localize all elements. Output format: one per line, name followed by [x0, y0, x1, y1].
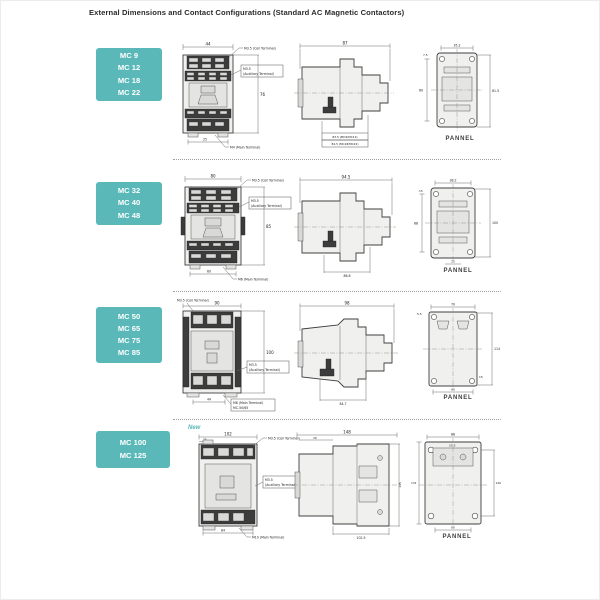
model-line: MC 100 [120, 437, 147, 449]
dim-bottom: 25 [451, 260, 455, 264]
callout-aux-terminal: M3.5 [243, 67, 251, 71]
model-label-mc32-48: MC 32 MC 40 MC 48 [96, 182, 162, 225]
pannel-label: PANNEL [411, 534, 503, 540]
dim-bottom-right: 15 [479, 375, 483, 379]
dim-overall-height: 100 [492, 221, 498, 225]
dim-bottom: 25 [203, 138, 207, 142]
model-line: MC 32 [118, 185, 140, 197]
dim-depth: 87 [342, 41, 348, 46]
dim-width: 44 [205, 42, 211, 47]
model-line: MC 40 [118, 197, 140, 209]
callout-aux-terminal: M3.5 [249, 363, 257, 367]
side-view-mc32-48: 94.5 86.8 [294, 173, 398, 279]
dim-bottom: 84 [221, 529, 225, 533]
dim-mount-height: 68 [414, 222, 418, 226]
contactor-profile [293, 444, 401, 526]
model-line: MC 48 [118, 210, 140, 222]
callout-aux-terminal: (Auxiliary Terminal) [265, 483, 296, 487]
dim-mount-height: 131 [411, 481, 417, 485]
dim-mount-depth: 102.5 [356, 536, 365, 540]
panel-cutout [423, 308, 483, 390]
callout-aux-terminal: (Auxiliary Terminal) [251, 204, 282, 208]
dim-depth: 94.5 [342, 175, 351, 180]
dim-width: 80 [210, 174, 216, 179]
contactor-body [183, 311, 241, 397]
dim-depth-variant: 83.5 (MC9/MC12) [332, 135, 357, 139]
dim-mount-depth: 86.8 [343, 274, 350, 278]
panel-view-mc32-48: 38.2 15 68 100 25 [413, 176, 503, 268]
dim-depth: 98 [344, 301, 350, 306]
contactor-body [199, 440, 257, 530]
model-line: MC 22 [118, 87, 140, 99]
page-title: External Dimensions and Contact Configur… [89, 8, 519, 17]
front-view-mc100-125: 102 25 M3.5 (Coil Terminal) M3.5 (Auxili… [189, 430, 301, 542]
row-divider [173, 419, 501, 420]
model-line: MC 50 [118, 311, 140, 323]
front-view-mc50-85: M3.5 (Coil Terminal) 90 100 M3.5 (Auxili… [177, 297, 289, 413]
panel-view-mc9-22: 35.2 7.5 60 81.5 [417, 41, 503, 135]
model-line: MC 85 [118, 347, 140, 359]
dim-height: 76 [260, 92, 266, 97]
pannel-label: PANNEL [417, 136, 503, 142]
model-line: MC 65 [118, 323, 140, 335]
model-line: MC 125 [120, 450, 147, 462]
dim-height: 100 [266, 350, 274, 355]
callout-main-terminal: M10 (Main Terminal) [252, 536, 284, 540]
dim-bottom: 60 [207, 270, 211, 274]
callout-coil-terminal: M3.5 (Coil Terminal) [252, 179, 284, 183]
model-line: MC 12 [118, 62, 140, 74]
dim-height: 145 [398, 482, 402, 488]
callout-main-terminal: M8 (Main Terminal) [233, 401, 263, 405]
dim-overall-height: 120 [496, 481, 502, 485]
callout-main-models: MC-50/65 [233, 406, 248, 410]
pannel-label: PANNEL [413, 268, 503, 274]
model-line: MC 9 [120, 50, 138, 62]
contactor-profile [294, 59, 394, 127]
contactor-profile [294, 319, 398, 387]
row-divider [173, 291, 501, 292]
dim-offset: 5.5 [417, 312, 422, 316]
dim-overall-height: 81.5 [492, 89, 499, 93]
dim-mount-width: 38.2 [449, 179, 456, 183]
dim-overall-height: 114 [494, 347, 500, 351]
dim-mount-width: 88 [451, 433, 455, 437]
callout-coil-terminal: M3.5 (Coil Terminal) [244, 47, 276, 51]
callout-aux-terminal: (Auxiliary Terminal) [243, 72, 274, 76]
dim-mount-depth: 84.7 [339, 402, 346, 406]
model-label-mc50-85: MC 50 MC 65 MC 75 MC 85 [96, 307, 162, 363]
callout-main-terminal: M6 (Main Terminal) [238, 278, 268, 282]
dim-inner: 25.5 [449, 444, 456, 448]
dim-mount-width: 35.2 [453, 44, 460, 48]
contactor-profile [294, 193, 396, 261]
callout-main-terminal: M4 (Main Terminal) [230, 146, 260, 150]
callout-aux-terminal: M3.5 [265, 478, 273, 482]
side-view-mc50-85: 98 84.7 [294, 299, 400, 407]
model-line: MC 75 [118, 335, 140, 347]
dim-mount-height: 60 [419, 89, 423, 93]
panel-view-mc50-85: 70 5.5 114 15 60 [413, 300, 503, 395]
front-view-mc32-48: 80 85 M3.5 (Coil Terminal) M3.5 (Auxilia… [179, 171, 291, 283]
model-label-mc9-22: MC 9 MC 12 MC 18 MC 22 [96, 48, 162, 101]
panel-cutout [419, 438, 487, 528]
dim-offset: 30 [313, 436, 317, 440]
model-line: MC 18 [118, 75, 140, 87]
contactor-body [183, 55, 233, 137]
dim-bottom: 60 [451, 526, 455, 530]
dim-offset: 7.5 [423, 53, 428, 57]
side-view-mc9-22: 87 83.5 (MC9/MC12) 84.5 (MC18/MC22) [294, 39, 396, 151]
dim-bottom: 60 [451, 388, 455, 392]
side-view-mc100-125: 148 30 145 102.5 [293, 428, 403, 542]
callout-aux-terminal: (Auxiliary Terminal) [249, 368, 280, 372]
dim-width: 90 [214, 301, 220, 306]
dim-offset: 15 [419, 189, 423, 193]
dim-bottom: 44 [207, 398, 211, 402]
catalog-page: External Dimensions and Contact Configur… [0, 0, 600, 600]
panel-cutout [431, 49, 483, 131]
contactor-body [181, 187, 245, 269]
dim-width: 102 [224, 432, 232, 437]
model-label-mc100-125: MC 100 MC 125 [96, 431, 170, 468]
dim-mount-width: 70 [451, 303, 455, 307]
row-divider [173, 159, 501, 160]
front-view-mc9-22: 44 76 M3.5 (Coil Terminal) M3.5 (Auxilia… [175, 39, 285, 151]
dim-height: 85 [266, 224, 272, 229]
pannel-label: PANNEL [413, 395, 503, 401]
panel-view-mc100-125: 88 25.5 131 120 60 [411, 430, 503, 534]
dim-depth: 148 [343, 430, 351, 435]
panel-cutout [425, 184, 481, 262]
dim-depth-variant: 84.5 (MC18/MC22) [332, 142, 359, 146]
callout-coil-terminal: M3.5 (Coil Terminal) [177, 299, 209, 303]
callout-aux-terminal: M3.5 [251, 199, 259, 203]
